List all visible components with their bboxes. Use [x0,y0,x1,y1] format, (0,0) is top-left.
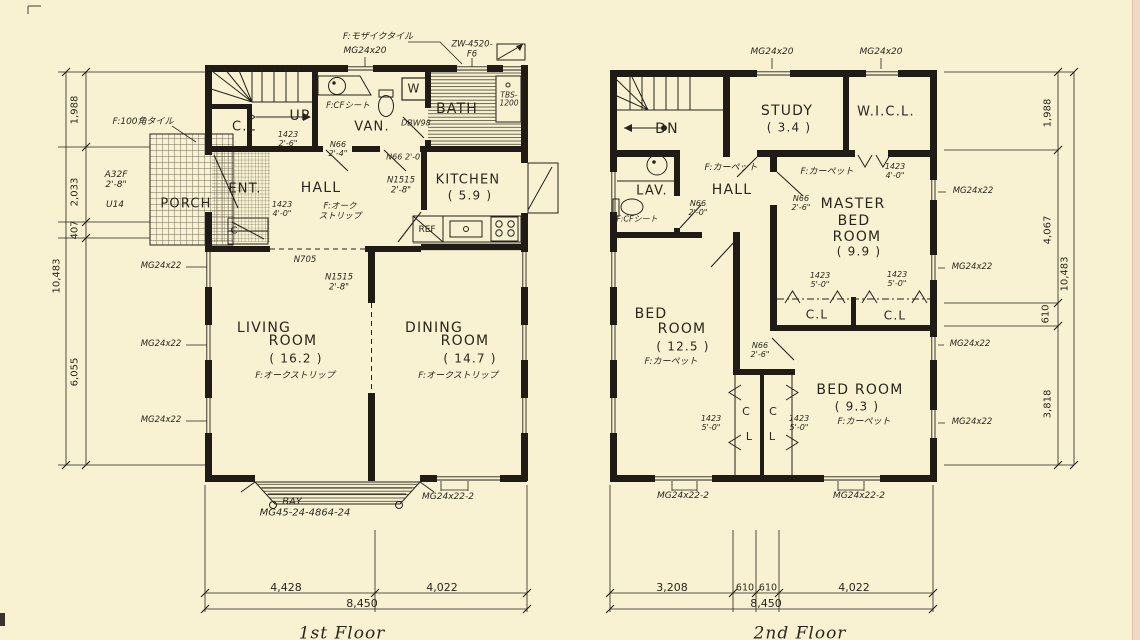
floorplan-page: F:モザイクタイルMG24x20ZW-4520- F6C.LUP1423 2'-… [0,0,1140,640]
scan-mark-artifact [0,613,5,626]
floor2-dimensions [606,68,1078,613]
floor2-fixtures [612,58,946,491]
second-floor-plan [606,58,1078,613]
north-arrow-icon [497,44,525,60]
scan-corner-tick [28,6,41,14]
bay-window-icon [241,482,434,509]
stairs-up-icon [208,68,312,102]
stove-icon [491,217,518,241]
washer-icon [402,78,426,100]
stairs-down-icon [617,77,723,110]
floor1-fixtures [172,42,558,509]
floor2-walls [610,70,937,482]
floorplan-drawing [0,0,1140,640]
first-floor-plan [58,42,558,613]
paper-edge-artifact [1132,0,1140,640]
